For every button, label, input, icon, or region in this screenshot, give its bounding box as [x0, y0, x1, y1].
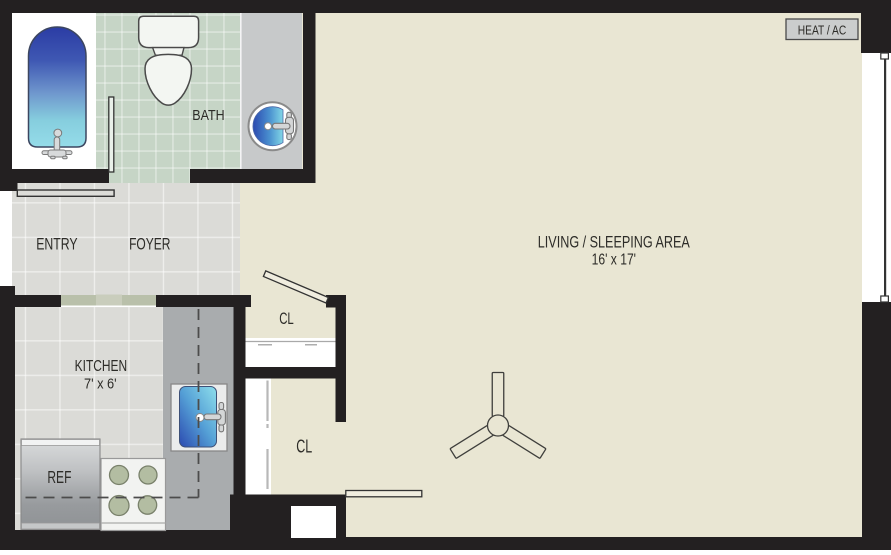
- svg-text:REF: REF: [47, 467, 71, 487]
- svg-text:16' x 17': 16' x 17': [592, 252, 636, 269]
- svg-text:BATH: BATH: [192, 108, 224, 124]
- svg-text:HEAT / AC: HEAT / AC: [798, 22, 846, 37]
- svg-text:CL: CL: [279, 309, 294, 328]
- svg-text:ENTRY: ENTRY: [36, 234, 77, 253]
- svg-text:7' x 6': 7' x 6': [84, 376, 117, 392]
- svg-text:LIVING / SLEEPING AREA: LIVING / SLEEPING AREA: [538, 233, 690, 251]
- svg-text:FOYER: FOYER: [129, 234, 170, 253]
- svg-text:KITCHEN: KITCHEN: [75, 358, 128, 375]
- svg-text:CL: CL: [296, 437, 312, 457]
